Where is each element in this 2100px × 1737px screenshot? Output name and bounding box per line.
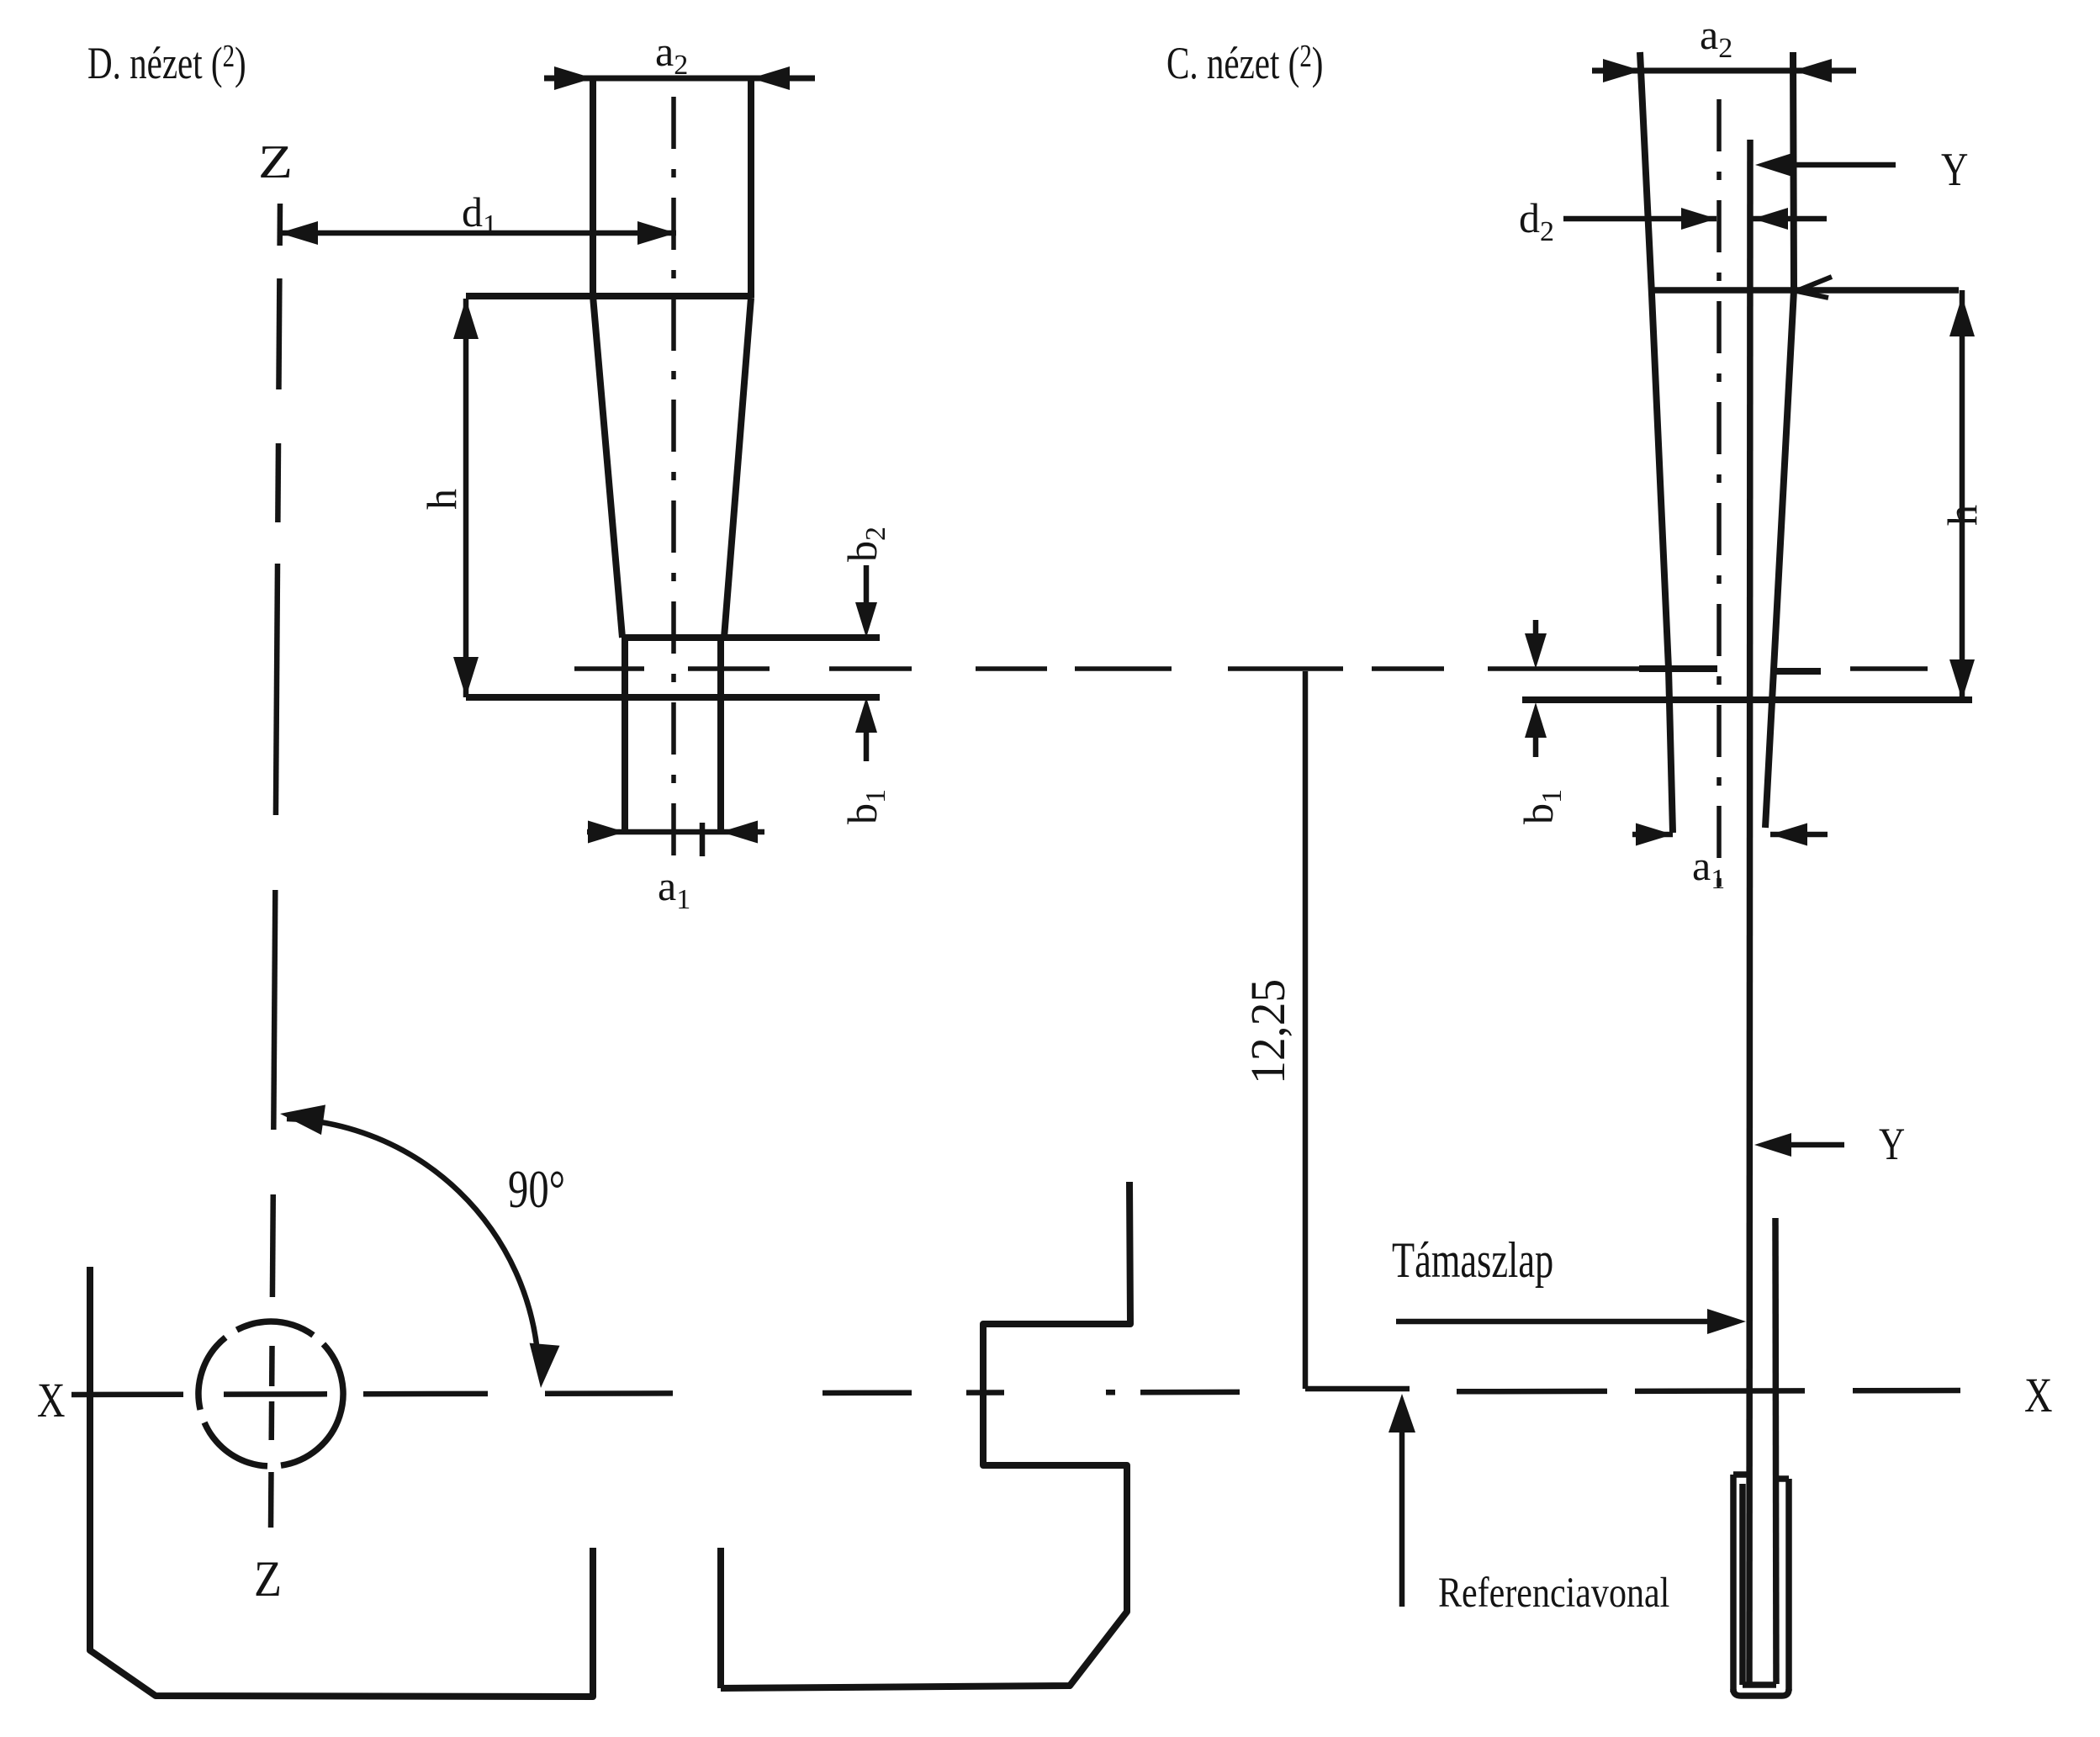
svg-text:Z: Z — [258, 136, 293, 188]
svg-text:D. nézet (2): D. nézet (2) — [87, 39, 246, 89]
svg-text:X: X — [37, 1374, 66, 1427]
svg-text:h: h — [1939, 505, 1986, 526]
svg-text:12,25: 12,25 — [1241, 979, 1295, 1084]
svg-text:90°: 90° — [508, 1160, 565, 1220]
svg-text:h: h — [418, 489, 465, 510]
svg-text:X: X — [2024, 1369, 2053, 1422]
svg-text:Támaszlap: Támaszlap — [1392, 1233, 1553, 1289]
svg-text:Referenciavonal: Referenciavonal — [1438, 1569, 1669, 1617]
svg-text:Y: Y — [1879, 1118, 1905, 1169]
svg-text:Z: Z — [254, 1551, 282, 1607]
svg-text:Y: Y — [1941, 143, 1968, 195]
